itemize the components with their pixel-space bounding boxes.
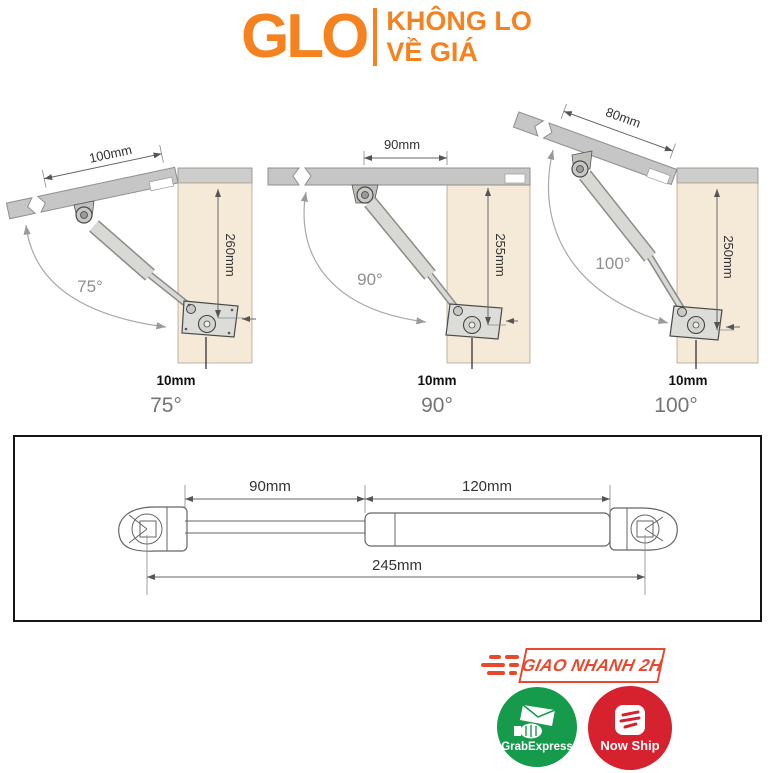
diagram-90deg: 90mm 255mm 10mm 90° 90°	[268, 137, 530, 415]
nowship-label: Now Ship	[600, 738, 659, 753]
fast-delivery-badge: GIAO NHANH 2H	[518, 648, 665, 683]
speed-dash-icon	[505, 655, 519, 659]
strut-cylinder	[365, 513, 610, 546]
left-end-fitting	[119, 507, 187, 551]
lid-group: 80mm	[513, 85, 690, 185]
speed-dash-icon	[481, 663, 505, 667]
cabinet-top-edge	[677, 168, 758, 183]
lid-break-stub	[513, 112, 543, 136]
angle-label: 100°	[595, 254, 630, 273]
brand-tagline: KHÔNG LO VỀ GIÁ	[386, 6, 532, 68]
hinge-connector	[505, 174, 525, 183]
strut-dimension-figure: 90mm 120mm 245mm	[13, 435, 762, 622]
lid-break-stub	[268, 168, 299, 185]
gas-strut-body	[94, 226, 150, 275]
body-dimension-label: 120mm	[462, 478, 512, 495]
offset-dimension-label: 10mm	[417, 373, 456, 388]
speed-dash-icon	[487, 671, 505, 675]
brand-logo: GLO KHÔNG LO VỀ GIÁ	[0, 6, 773, 68]
lid-dimension-label: 90mm	[384, 137, 420, 152]
diagram-caption: 90°	[421, 394, 453, 415]
tagline-line-2: VỀ GIÁ	[386, 37, 532, 68]
lid-break-stub	[6, 198, 35, 219]
rod-dimension-label: 90mm	[249, 478, 291, 495]
angle-label: 90°	[357, 270, 383, 289]
diagram-caption: 100°	[654, 394, 697, 415]
diagram-caption: 75°	[150, 394, 182, 415]
offset-dimension-label: 10mm	[668, 373, 707, 388]
logo-divider	[373, 8, 377, 66]
right-end-fitting	[610, 508, 677, 550]
height-dimension-label: 255mm	[493, 233, 508, 276]
offset-dimension-label: 10mm	[156, 373, 195, 388]
gas-strut-body	[370, 202, 430, 275]
hand-package-icon	[514, 702, 560, 740]
angle-diagrams-figure: 100mm 260mm 10mm 75° 75°	[0, 85, 773, 415]
cabinet-top-edge	[178, 168, 252, 183]
product-image: GLO KHÔNG LO VỀ GIÁ	[0, 0, 773, 773]
total-dimension-label: 245mm	[372, 557, 422, 574]
lid-dimension-label: 100mm	[88, 142, 134, 166]
speed-dash-icon	[509, 671, 517, 675]
speed-dash-icon	[509, 663, 519, 667]
lid	[305, 168, 530, 185]
diagram-75deg: 100mm 260mm 10mm 75° 75°	[0, 134, 256, 415]
grabexpress-label: GrabExpress	[501, 741, 573, 753]
fast-delivery-label: GIAO NHANH 2H	[520, 656, 664, 676]
brand-logo-text: GLO	[241, 8, 366, 67]
speed-dash-icon	[489, 655, 501, 659]
speed-lines-icon	[613, 703, 647, 737]
height-dimension-label: 250mm	[721, 235, 736, 278]
grabexpress-badge: GrabExpress	[497, 687, 577, 767]
tagline-line-1: KHÔNG LO	[386, 6, 532, 37]
nowship-badge: Now Ship	[588, 686, 672, 770]
diagram-100deg: 80mm 250mm 10mm 100° 100°	[513, 85, 758, 415]
angle-label: 75°	[77, 277, 103, 296]
gas-strut-body	[585, 175, 650, 257]
lid-dimension-label: 80mm	[604, 104, 643, 130]
height-dimension-label: 260mm	[223, 233, 238, 276]
